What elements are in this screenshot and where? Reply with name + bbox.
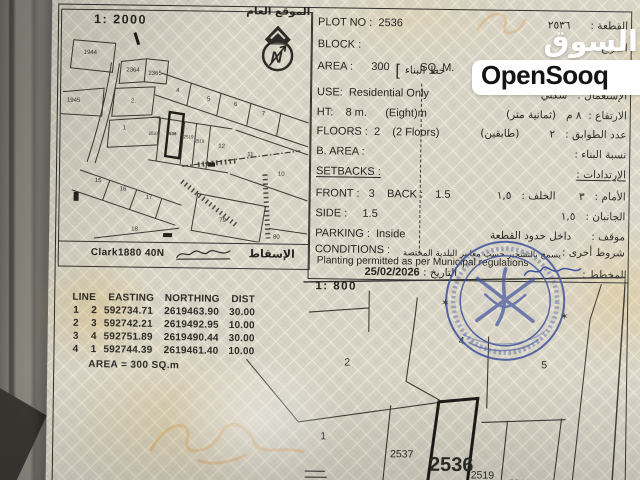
- opensooq-logo-text: OpenSooq: [472, 60, 640, 91]
- detail-row: SIDE : 1.5الجانبان : ١,٥: [309, 207, 629, 227]
- detail-map-scale: 1: 800: [315, 280, 357, 293]
- plot-label: 80: [273, 235, 280, 241]
- plot-label: 17: [146, 195, 153, 201]
- detail-row: FLOORS : 2 (2 Floors)عدد الطوابق : ٢ (طا…: [310, 125, 630, 145]
- plot-label: 1944: [84, 50, 98, 56]
- oman-emblem-icon: [477, 268, 534, 325]
- plot-label: 2537: [390, 448, 414, 460]
- plot-label: 12: [218, 144, 225, 150]
- table-row: 41592744.392619461.4010.00: [64, 343, 264, 359]
- plot-label: 2518: [194, 138, 205, 143]
- site-map-panel: 1: 2000 الموقع العام: [58, 9, 314, 270]
- site-map-scale: 1: 2000: [94, 12, 147, 27]
- svg-text:✶: ✶: [441, 298, 450, 309]
- photo-frame: 1: 2000 الموقع العام: [0, 0, 640, 480]
- plot-label: 6: [234, 102, 238, 108]
- site-map-title: الموقع العام: [246, 5, 310, 18]
- projection-bar: Clark1880 40N الإسقاط: [59, 241, 309, 269]
- svg-text:✶: ✶: [560, 312, 569, 323]
- plot-label: 7: [262, 111, 266, 117]
- detail-row: SETBACKS :الإرتدادات :: [310, 165, 630, 185]
- highlighted-plot-label: 2536: [166, 131, 177, 136]
- plot-label: 15: [95, 178, 102, 184]
- plot-label: 2.: [131, 99, 136, 105]
- projection-label: الإسقاط: [248, 247, 294, 261]
- plot-label: 2519: [183, 134, 194, 139]
- north-arrow-icon: N: [255, 22, 300, 73]
- plot-label: 2365: [148, 71, 162, 77]
- plot-label: 2537: [148, 131, 159, 136]
- area-note: AREA = 300 SQ.m: [88, 359, 264, 372]
- surveyor-signature: [175, 247, 233, 262]
- plot-label: 79: [219, 218, 226, 224]
- plot-label: 1945: [67, 98, 81, 104]
- plot-label: 4: [176, 88, 180, 94]
- datum-label: Clark1880 40N: [91, 247, 165, 259]
- plot-label: 1: [320, 430, 326, 442]
- plot-label: 2: [344, 357, 350, 369]
- opensooq-logo-badge: OpenSooq: [472, 60, 640, 95]
- plot-label: 10: [278, 172, 285, 178]
- plot-label: 11: [247, 152, 254, 158]
- detail-row: HT: 8 m. (Eight)mالارتفاع : ٨ م (ثمانية …: [311, 106, 631, 126]
- plot-label: 5: [207, 97, 211, 103]
- municipality-stamp: ✶ ✶: [438, 234, 572, 368]
- building-line-label: [خط البناء: [395, 60, 445, 79]
- plot-label: 16: [120, 186, 127, 192]
- plot-label: 1: [123, 125, 127, 131]
- detail-row: FRONT : 3 BACK : 1.5الأمام : ٣ الخلف : ١…: [310, 187, 630, 207]
- detail-row: B. AREA :نسبة البناء :: [310, 145, 630, 165]
- plot-label: 2519: [471, 469, 495, 480]
- survey-table: LINE EASTING NORTHING DIST 12592734.7126…: [64, 291, 265, 373]
- plot-label: 18: [131, 227, 138, 233]
- highlighted-plot-label: 2536: [429, 454, 474, 477]
- plot-label: 2364: [126, 67, 140, 73]
